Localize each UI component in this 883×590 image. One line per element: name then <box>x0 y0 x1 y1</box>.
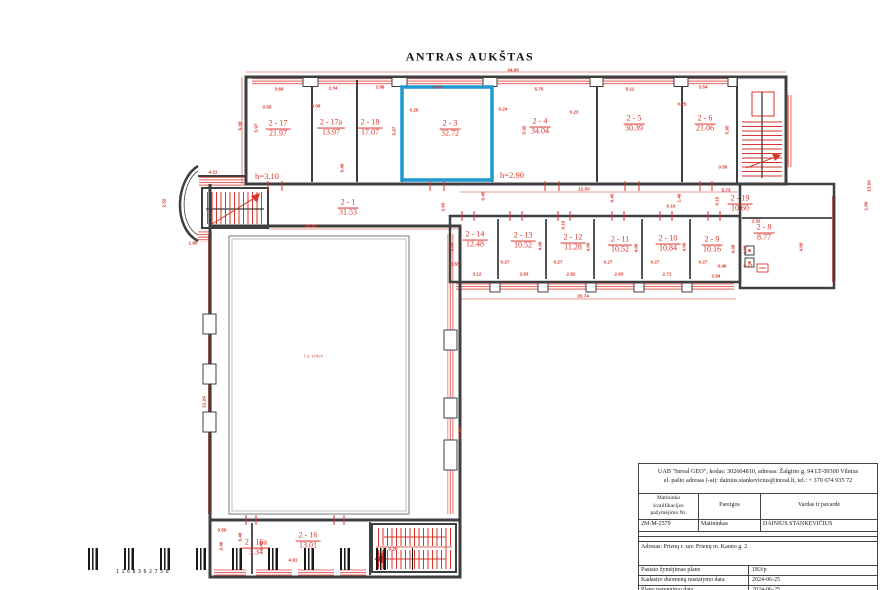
barcode <box>88 548 413 570</box>
col-header-cert: Matininko kvalifikacijos pažymėjimo Nr. <box>639 494 699 519</box>
titleblock-company-info: UAB "Inreal GEO", kodas: 302604810, adre… <box>639 464 877 493</box>
wc-fixtures <box>745 246 768 272</box>
row-value: 2024-06-25 <box>749 576 877 585</box>
titleblock-surveyor-row: 2M-M-2579 Matininkas DAINIUS STANKEVIČIU… <box>639 519 877 531</box>
building-marking-row: Pastato žymėjimas plane 1B3/p <box>639 565 877 575</box>
col-header-name: Vardas ir pavardė <box>761 494 877 519</box>
surveyor-name: DAINIUS STANKEVIČIUS <box>761 520 877 531</box>
plan-date-row: Plano parengimo data 2024-06-25 <box>639 585 877 590</box>
row-value: 2024-06-25 <box>749 586 877 590</box>
surveyor-position: Matininkas <box>699 520 761 531</box>
title-block: UAB "Inreal GEO", kodas: 302604810, adre… <box>638 463 878 590</box>
company-line-1: UAB "Inreal GEO", kodas: 302604810, adre… <box>639 467 877 476</box>
row-value: 1B3/p <box>749 566 877 575</box>
hall-area-label: 1 a. erdvė <box>303 355 323 360</box>
titleblock-column-headers: Matininko kvalifikacijos pažymėjimo Nr. … <box>639 493 877 519</box>
plan-title: ANTRAS AUKŠTAS <box>406 50 534 65</box>
row-label: Plano parengimo data <box>639 586 749 590</box>
row-label: Pastato žymėjimas plane <box>639 566 749 575</box>
row-label: Kadastro duomenų nustatymo data <box>639 576 749 585</box>
col-header-position: Pareigos <box>699 494 761 519</box>
highlighted-room-outline <box>402 87 492 180</box>
property-address: Adresas: Prienų r. sav. Prienų m. Kauno … <box>639 541 877 565</box>
staircase-top-right <box>742 92 782 178</box>
barcode-number: 1168362750 <box>116 569 171 575</box>
floor-plan-page: ANTRAS AUKŠTAS 1 a. erdvė 2 - 1721.972 -… <box>0 0 883 590</box>
company-line-2: el. pašto adresas (-ai): dainius.stankev… <box>639 476 877 485</box>
surveyor-cert-no: 2M-M-2579 <box>639 520 699 531</box>
staircase-west <box>202 188 268 228</box>
cadastre-date-row: Kadastro duomenų nustatymo data 2024-06-… <box>639 575 877 585</box>
